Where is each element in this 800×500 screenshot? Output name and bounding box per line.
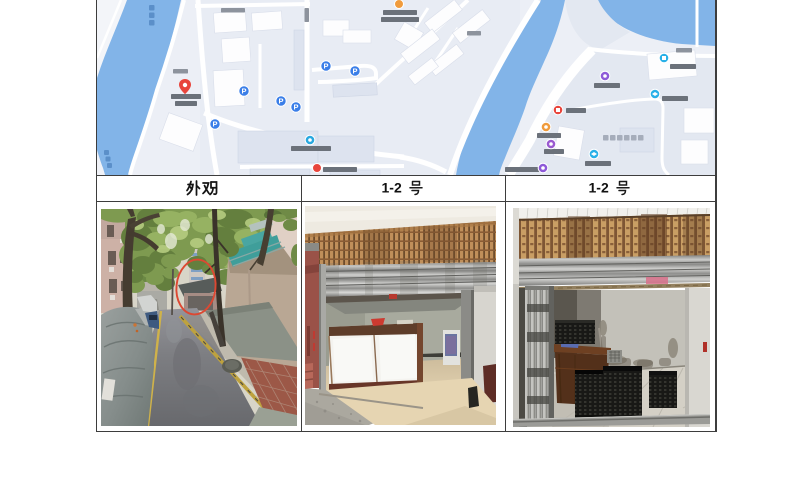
- svg-text:P: P: [293, 103, 298, 112]
- svg-text:P: P: [278, 97, 283, 106]
- svg-text:1-2: 1-2: [382, 180, 402, 196]
- svg-text:P: P: [241, 87, 246, 96]
- svg-text:P: P: [323, 62, 328, 71]
- svg-text:1-2: 1-2: [589, 180, 609, 196]
- svg-text:P: P: [212, 120, 217, 129]
- svg-text:P: P: [352, 67, 357, 76]
